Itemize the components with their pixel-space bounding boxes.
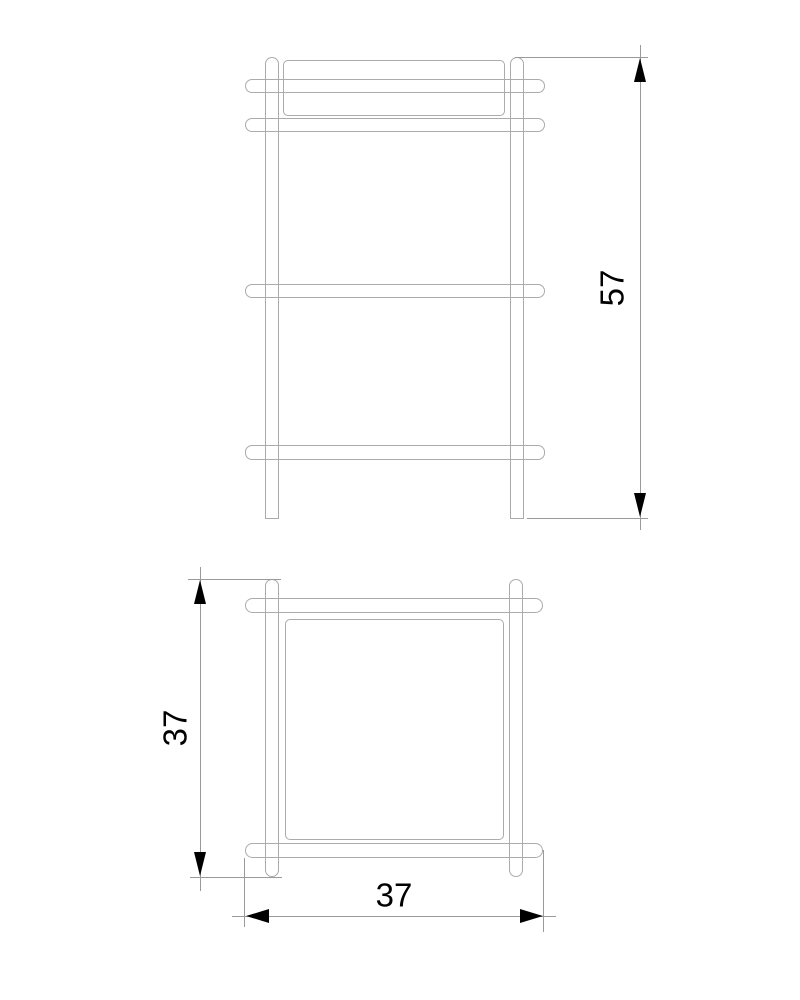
front-rail-top	[245, 79, 545, 93]
width-arrow-left-icon	[246, 909, 269, 923]
height-extension-line-top	[515, 57, 648, 58]
front-rail-middle	[245, 284, 545, 298]
front-rail-upper	[245, 118, 545, 132]
drawing-sheet: 57 37 37	[0, 0, 800, 1000]
height-arrow-down-icon	[634, 493, 646, 517]
plan-side-rail-left	[265, 579, 279, 877]
width-dimension-line	[232, 916, 556, 917]
plan-rail-bottom	[245, 843, 543, 858]
height-arrow-up-icon	[634, 58, 646, 82]
plan-tabletop	[285, 619, 504, 840]
front-rail-bottom	[245, 445, 545, 460]
depth-dimension-line	[200, 567, 201, 891]
width-arrow-right-icon	[520, 909, 543, 923]
width-extension-line-right	[543, 850, 544, 932]
depth-extension-line-bottom	[190, 877, 282, 878]
width-dimension-label: 37	[376, 879, 413, 912]
depth-arrow-up-icon	[194, 580, 206, 604]
height-extension-line-bottom	[527, 518, 648, 519]
depth-arrow-down-icon	[194, 852, 206, 876]
height-dimension-line	[640, 45, 641, 530]
plan-side-rail-right	[509, 579, 523, 877]
depth-dimension-label: 37	[159, 710, 192, 747]
height-dimension-label: 57	[596, 270, 629, 307]
plan-rail-top	[245, 598, 543, 613]
